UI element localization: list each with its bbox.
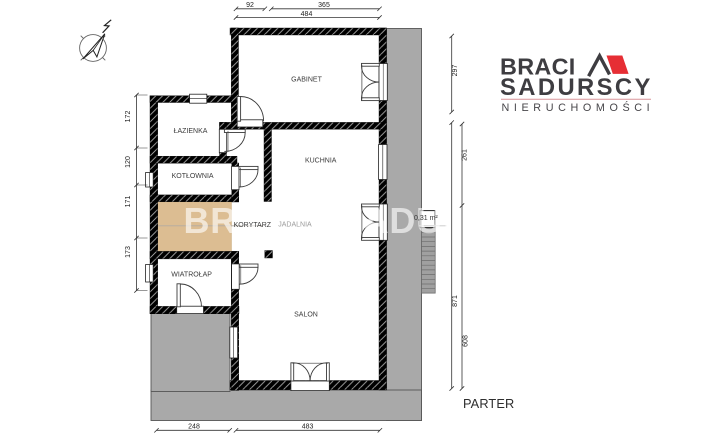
- svg-text:JADALNIA: JADALNIA: [278, 222, 312, 229]
- svg-text:297: 297: [452, 65, 459, 77]
- svg-text:261: 261: [462, 149, 469, 161]
- svg-text:173: 173: [125, 246, 132, 258]
- svg-text:GABINET: GABINET: [291, 77, 322, 84]
- svg-text:0,31 m²: 0,31 m²: [414, 215, 438, 222]
- svg-text:365: 365: [318, 2, 330, 9]
- svg-text:171: 171: [125, 196, 132, 208]
- svg-text:KOTŁOWNIA: KOTŁOWNIA: [172, 173, 214, 180]
- svg-text:ŁAZIENKA: ŁAZIENKA: [174, 128, 208, 135]
- svg-text:484: 484: [301, 11, 313, 18]
- svg-text:871: 871: [452, 295, 459, 307]
- svg-text:608: 608: [463, 335, 470, 347]
- svg-text:120: 120: [125, 156, 132, 168]
- svg-text:248: 248: [188, 423, 200, 430]
- svg-text:WIATROŁAP: WIATROŁAP: [171, 272, 212, 279]
- svg-text:172: 172: [125, 111, 132, 123]
- svg-text:92: 92: [246, 2, 254, 9]
- svg-text:PARTER: PARTER: [463, 396, 514, 411]
- svg-text:483: 483: [302, 423, 314, 430]
- svg-text:NIERUCHOMOŚCI: NIERUCHOMOŚCI: [502, 101, 655, 114]
- svg-text:KORYTARZ: KORYTARZ: [234, 222, 272, 229]
- svg-text:SADURSCY: SADURSCY: [500, 74, 653, 101]
- svg-text:SALON: SALON: [294, 312, 318, 319]
- svg-text:BRACIA SADURSCY: BRACIA SADURSCY: [184, 200, 547, 241]
- svg-text:KUCHNIA: KUCHNIA: [305, 158, 337, 165]
